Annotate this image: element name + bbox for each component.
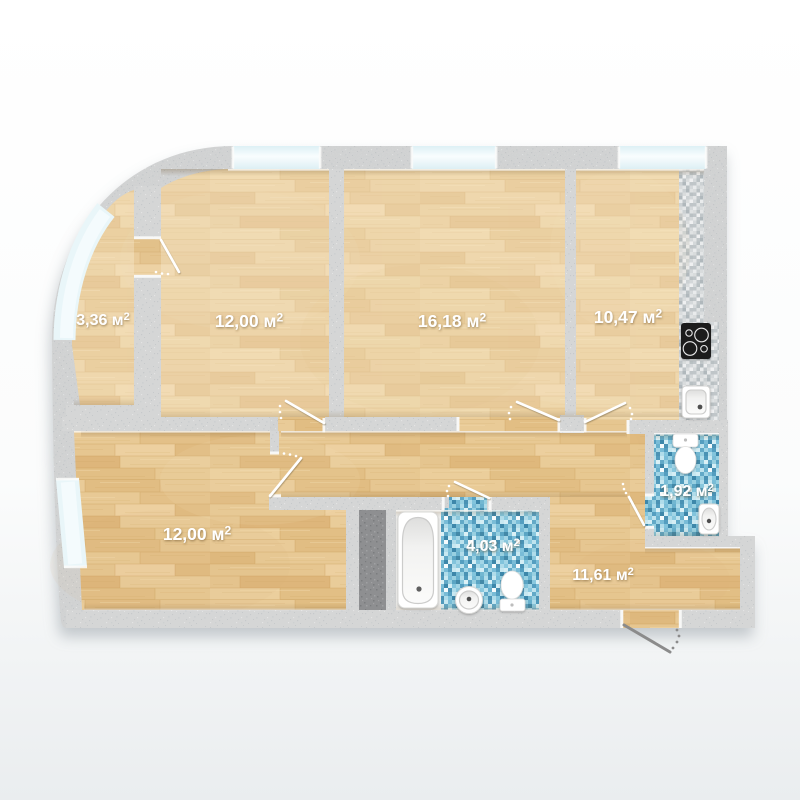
svg-text:3,36 м2: 3,36 м2 [76, 311, 130, 329]
svg-text:12,00 м2: 12,00 м2 [163, 524, 232, 545]
svg-text:12,00 м2: 12,00 м2 [215, 311, 284, 332]
svg-text:10,47 м2: 10,47 м2 [594, 307, 663, 328]
svg-text:16,18 м2: 16,18 м2 [418, 311, 487, 332]
svg-text:1,92 м2: 1,92 м2 [660, 482, 714, 500]
svg-text:4,03 м2: 4,03 м2 [466, 537, 520, 555]
svg-text:11,61 м2: 11,61 м2 [572, 566, 634, 584]
